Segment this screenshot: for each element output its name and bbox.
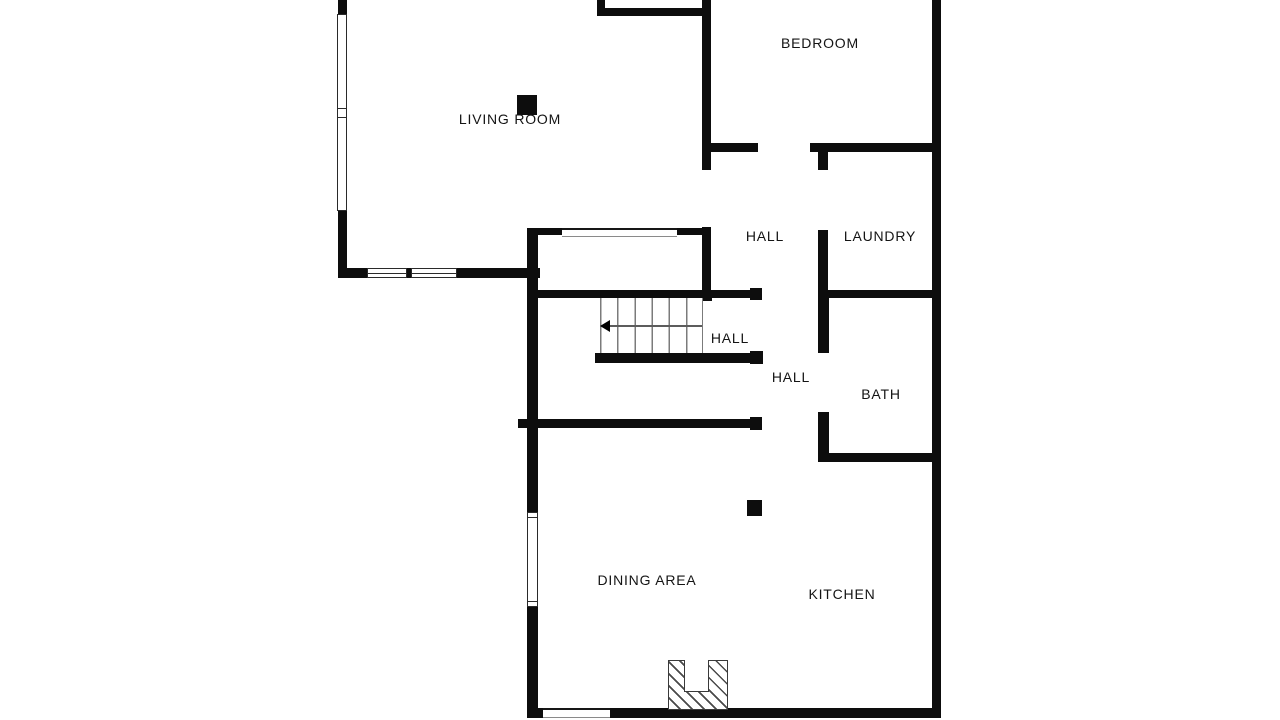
fireplace bbox=[668, 660, 728, 710]
bottom-wall-opening bbox=[543, 708, 610, 718]
bedroom-bottom-wall-left bbox=[702, 143, 758, 152]
bath-left-wall-top bbox=[818, 298, 829, 353]
interior-opening-wall-left bbox=[530, 228, 562, 235]
stair-top-wall-stub bbox=[702, 290, 712, 301]
living-room-bottom-window-1 bbox=[367, 268, 407, 278]
room-label-living-room: LIVING ROOM bbox=[459, 111, 561, 127]
kitchen-column bbox=[747, 500, 762, 516]
left-exterior-wall-mid bbox=[527, 228, 538, 512]
bottom-exterior-wall bbox=[610, 708, 941, 718]
living-room-interior-opening bbox=[562, 228, 677, 237]
bedroom-bottom-wall-right bbox=[810, 143, 941, 152]
room-label-dining-area: DINING AREA bbox=[597, 572, 696, 588]
room-label-laundry: LAUNDRY bbox=[844, 228, 916, 244]
living-room-left-window bbox=[337, 14, 347, 211]
staircase bbox=[600, 298, 703, 353]
interior-opening-wall-right bbox=[677, 228, 711, 235]
laundry-bottom-wall bbox=[818, 290, 935, 298]
laundry-left-wall-bottom bbox=[818, 230, 828, 298]
stairs-bottom-wall bbox=[595, 353, 753, 363]
dining-top-wall bbox=[518, 419, 752, 428]
bottom-wall-left-stub bbox=[527, 708, 544, 718]
entry-notch-bottom-wall bbox=[597, 8, 707, 16]
right-exterior-wall bbox=[932, 0, 941, 718]
hall-left-wall-lower bbox=[702, 227, 711, 291]
stair-direction-arrow-icon bbox=[600, 320, 610, 332]
room-label-hall-stairs: HALL bbox=[711, 330, 749, 346]
left-exterior-wall-bottom bbox=[527, 607, 538, 718]
upper-hall-bottom-wall-cap bbox=[750, 288, 762, 300]
room-label-hall-upper: HALL bbox=[746, 228, 784, 244]
stairs-bottom-wall-cap bbox=[750, 351, 763, 364]
dining-left-window bbox=[527, 512, 538, 607]
floor-plan: LIVING ROOM BEDROOM HALL LAUNDRY HALL HA… bbox=[0, 0, 1280, 720]
living-room-bottom-window-2 bbox=[411, 268, 457, 278]
upper-hall-bottom-wall bbox=[530, 290, 762, 298]
room-label-kitchen: KITCHEN bbox=[808, 586, 875, 602]
room-label-hall-lower: HALL bbox=[772, 369, 810, 385]
stair-run-line bbox=[606, 325, 702, 327]
firebox bbox=[684, 660, 709, 692]
laundry-left-wall-top bbox=[818, 143, 828, 170]
dining-top-wall-cap bbox=[750, 417, 762, 430]
room-label-bedroom: BEDROOM bbox=[781, 35, 859, 51]
bath-bottom-wall bbox=[818, 453, 935, 462]
living-room-bottom-wall-left bbox=[338, 268, 369, 278]
room-label-bath: BATH bbox=[861, 386, 901, 402]
